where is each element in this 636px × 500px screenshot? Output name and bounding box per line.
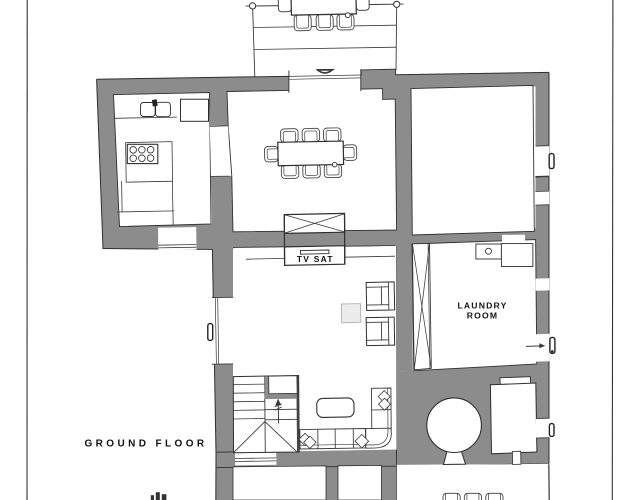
svg-text:GROUND FLOOR: GROUND FLOOR	[85, 439, 208, 450]
svg-text:TV SAT: TV SAT	[297, 254, 334, 264]
svg-text:ROOM: ROOM	[467, 311, 499, 321]
svg-text:LAUNDRY: LAUNDRY	[457, 301, 507, 311]
